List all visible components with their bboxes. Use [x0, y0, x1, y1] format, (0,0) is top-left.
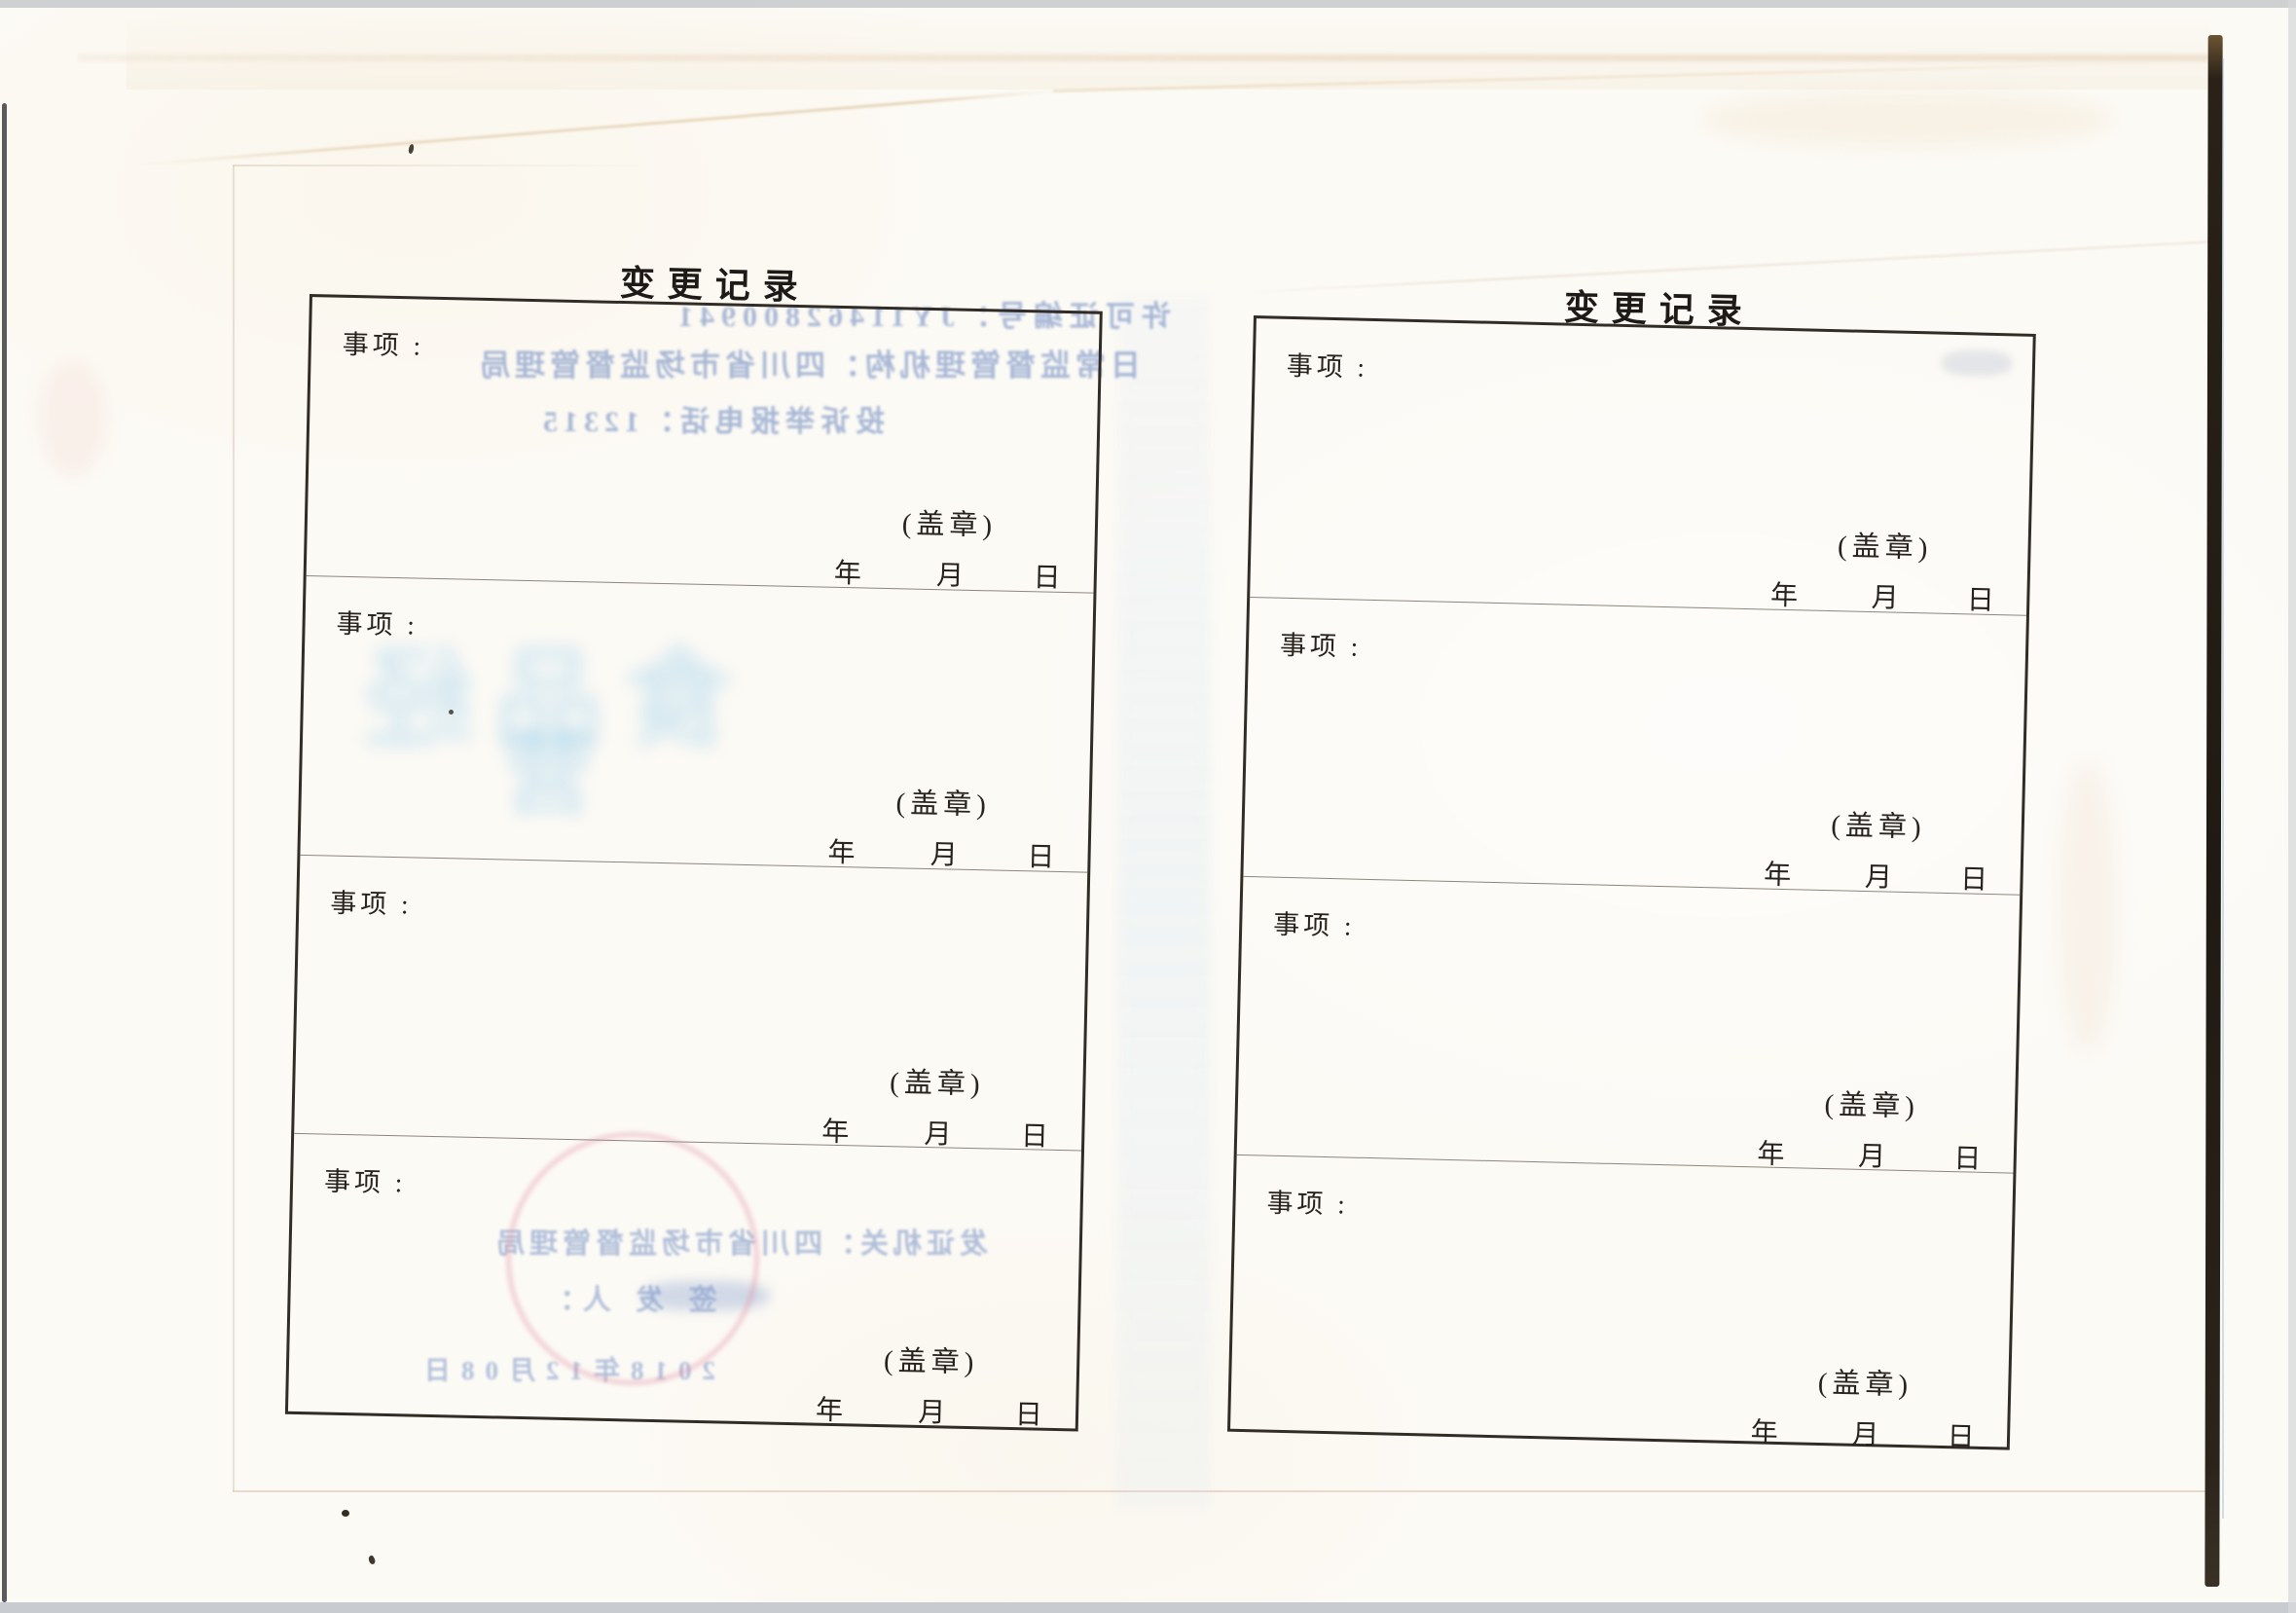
scanner-edge-top [0, 0, 2296, 8]
book-spine-highlight [2222, 58, 2224, 1519]
change-record-table-left: 事项 : (盖章) 年 月 日 事项 : (盖章) 年 月 日 事项 : (盖章… [285, 294, 1103, 1432]
record-section: 事项 : (盖章) 年 月 日 [1237, 876, 2021, 1174]
seal-label: (盖章) [1824, 1081, 1919, 1124]
seal-label: (盖章) [901, 500, 997, 543]
fold-sheen [127, 10, 2209, 90]
year-label: 年 [1750, 1411, 1778, 1450]
change-record-table-right: 事项 : (盖章) 年 月 日 事项 : (盖章) 年 月 日 事项 : (盖章… [1227, 315, 2036, 1450]
ink-speck [408, 144, 415, 155]
record-section: 事项 : (盖章) 年 月 日 [288, 1133, 1081, 1430]
day-label: 日 [1033, 556, 1061, 596]
day-label: 日 [1014, 1393, 1042, 1433]
item-label: 事项 : [330, 882, 413, 922]
item-label: 事项 : [1286, 345, 1368, 385]
inner-sheet-edge-top [233, 165, 651, 166]
book-spine-shadow [2205, 35, 2222, 1587]
page-edge-line-left [2, 103, 7, 1602]
seal-label: (盖章) [1817, 1360, 1913, 1403]
month-label: 月 [918, 1391, 946, 1431]
seal-label: (盖章) [890, 1059, 985, 1102]
inner-sheet-edge-left [233, 165, 235, 1491]
ink-speck [449, 710, 454, 715]
month-label: 月 [1865, 856, 1893, 896]
paper-stain [39, 360, 107, 477]
record-section: 事项 : (盖章) 年 月 日 [300, 575, 1093, 872]
inner-sheet-edge-bottom [233, 1490, 2213, 1492]
record-section: 事项 : (盖章) 年 月 日 [1230, 1155, 2014, 1452]
month-label: 月 [936, 554, 965, 594]
page-gutter-shadow [1117, 292, 1211, 1509]
day-label: 日 [1966, 578, 1994, 618]
crease-streak [78, 55, 2209, 61]
day-label: 日 [1960, 858, 1988, 898]
scanner-edge-bottom [0, 1602, 2296, 1613]
month-label: 月 [1851, 1413, 1879, 1453]
paper-stain [1703, 92, 2112, 146]
ink-speck [342, 1510, 349, 1517]
year-label: 年 [827, 831, 856, 871]
year-label: 年 [816, 1389, 844, 1429]
record-section: 事项 : (盖章) 年 月 日 [294, 855, 1087, 1152]
paper-stain [2059, 759, 2117, 1051]
record-section: 事项 : (盖章) 年 月 日 [1243, 597, 2026, 895]
seal-label: (盖章) [884, 1338, 979, 1380]
item-label: 事项 : [1266, 1182, 1349, 1222]
record-section: 事项 : (盖章) 年 月 日 [307, 297, 1100, 593]
year-label: 年 [1770, 574, 1799, 614]
item-label: 事项 : [1280, 624, 1363, 664]
item-label: 事项 : [324, 1160, 407, 1200]
item-label: 事项 : [336, 603, 419, 642]
scanner-edge-right [2288, 0, 2296, 1613]
seal-label: (盖章) [1831, 802, 1926, 845]
day-label: 日 [1947, 1415, 1975, 1455]
scanned-document-page: 许可证编号：JY11462800941 日常监督管理机构：四川省市场监督管理局 … [0, 0, 2296, 1613]
item-label: 事项 : [343, 323, 425, 363]
seal-label: (盖章) [895, 780, 991, 823]
month-label: 月 [929, 833, 958, 873]
fold-crease-left [136, 90, 1058, 166]
month-label: 月 [1871, 576, 1899, 616]
seal-label: (盖章) [1838, 523, 1933, 566]
year-label: 年 [833, 552, 861, 592]
ink-speck [368, 1555, 377, 1565]
item-label: 事项 : [1273, 903, 1356, 943]
record-section: 事项 : (盖章) 年 月 日 [1250, 318, 2033, 615]
year-label: 年 [1764, 854, 1792, 894]
day-label: 日 [1027, 835, 1055, 875]
